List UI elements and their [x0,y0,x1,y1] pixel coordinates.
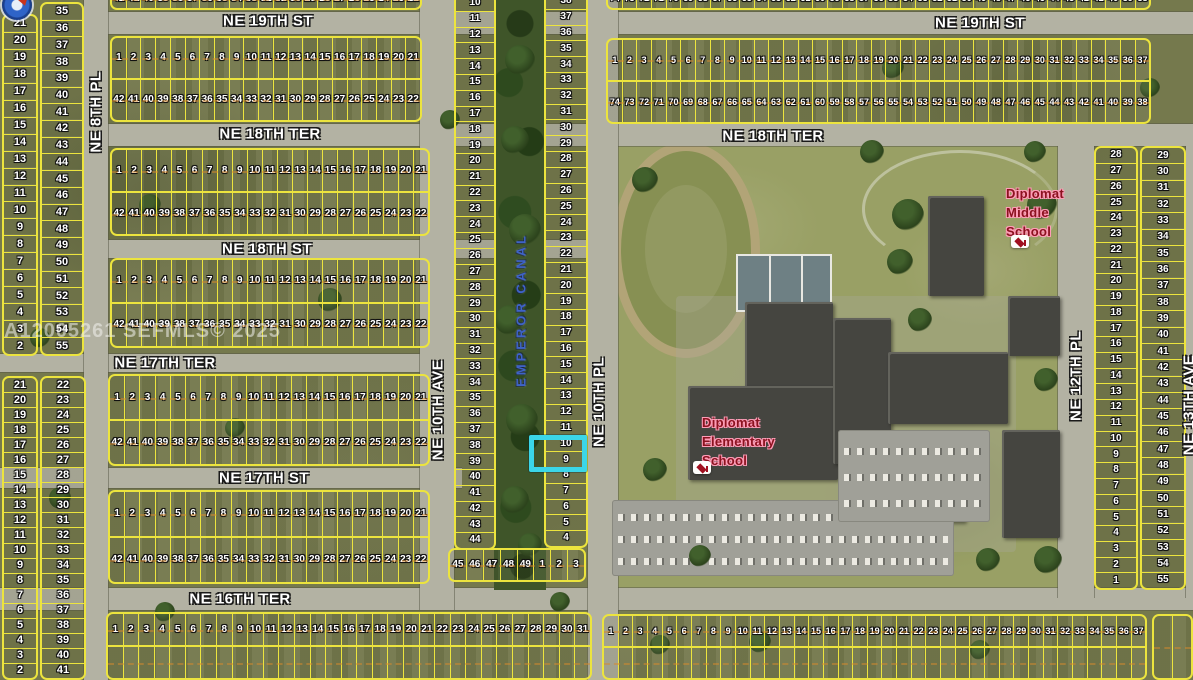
parcel-lot: 19 [546,294,586,310]
parcel-lot: 15 [323,492,338,536]
parcel-lot: 32 [42,528,84,543]
lot-number: 20 [888,56,898,65]
parcel-lot: 9 [4,559,36,574]
lot-number: 68 [698,98,708,107]
lot-number: 4 [160,509,166,519]
lot-number: 16 [1110,339,1121,349]
lot-number: 36 [1157,265,1168,275]
parcel-lot: 41 [1092,82,1107,122]
lot-number: 50 [962,0,972,3]
lot-number: 68 [698,0,708,3]
parcel-lot: 21 [414,260,428,302]
parcel-lot: 22 [435,614,451,645]
parcel-lot: 1 [112,260,127,302]
lot-number: 46 [56,190,68,201]
parcel-lot: 24 [945,40,960,80]
lot-number: 52 [1157,526,1168,536]
parcel-lot: 8 [4,236,36,253]
lot-number: 26 [349,0,360,4]
parcel-lot [795,648,810,678]
parcel-lot: 25 [368,538,383,582]
parcel-lot [912,648,927,678]
school-building [928,196,984,296]
parcel-lot: 16 [338,376,353,419]
lot-number: 12 [469,30,480,40]
lot-number: 22 [914,627,924,636]
lot-number: 26 [972,627,982,636]
lot-number: 5 [671,56,676,65]
lot-number: 38 [469,441,480,451]
parcel-lot: 24 [546,215,586,231]
lot-number: 64 [756,98,766,107]
parcel-lot: 26 [353,538,368,582]
parcel-lot: 25 [362,0,377,8]
parcel-lot: 52 [1142,524,1184,540]
lot-number: 33 [1075,627,1085,636]
parcel-lot: 12 [765,616,780,646]
lot-number: 22 [415,209,426,219]
lot-number: 45 [56,174,68,185]
parcel-row [604,646,1145,678]
parcel-lot: 4 [155,614,171,645]
parcel-lot: 15 [4,118,36,135]
parcel-lot: 7 [200,38,215,78]
lot-number: 10 [14,545,26,556]
lot-number: 43 [1157,379,1168,389]
parcel-lot: 5 [172,150,187,191]
lot-number: 15 [811,627,821,636]
parcel-lot: 39 [1142,311,1184,327]
lot-number: 40 [1108,0,1118,3]
lot-number: 30 [57,500,69,511]
lot-number: 1 [1113,576,1119,586]
parcel-lot [1000,648,1015,678]
aerial-parcel-map: EMPEROR CANAL Diplomat Elementary School… [0,0,1193,680]
lot-number: 16 [826,627,836,636]
street-label-ne-13th-ave: NE 13TH AVE [1181,355,1193,456]
lot-number: 23 [57,395,69,406]
lot-number: 9 [237,166,243,176]
parcel-lot: 32 [259,80,274,120]
parcel-lot: 32 [262,421,277,464]
parcel-lot: 29 [544,614,560,645]
parcel-lot: 18 [4,423,36,438]
parcel-lot: 25 [546,199,586,215]
parcel-lot: 14 [795,616,810,646]
lot-number: 31 [1050,56,1060,65]
parcel-lot: 44 [1048,82,1063,122]
lot-number: 24 [378,95,389,105]
lot-number: 30 [1035,56,1045,65]
lot-number: 31 [469,330,480,340]
lot-number: 28 [57,470,69,481]
lot-number: 13 [14,500,26,511]
lot-number: 28 [530,625,541,635]
school-label-elementary: Diplomat Elementary School [702,413,775,470]
lot-number: 28 [325,209,336,219]
parcel-row [1154,616,1191,678]
lot-number: 47 [1006,98,1016,107]
parcel-lot: 22 [414,421,428,464]
parcel-lot: 15 [809,616,824,646]
parcel-lot: 14 [308,260,323,302]
lot-number: 17 [14,440,26,451]
parcel-lot: 2 [1096,558,1136,574]
lot-number: 25 [484,625,495,635]
parcel-lot: 20 [456,154,494,170]
parcel-lot: 67 [711,82,726,122]
lot-number: 31 [280,209,291,219]
parcel-lot [1173,616,1191,678]
lot-number: 21 [421,625,432,635]
lot-number: 67 [712,98,722,107]
lot-number: 11 [265,276,276,286]
parcel-lot: 34 [456,375,494,391]
parcel-lot [497,647,513,678]
parcel-lot: 11 [456,12,494,28]
parcel-lot: 51 [42,272,82,289]
parcel-lot: 9 [725,40,740,80]
lot-number: 48 [56,224,68,235]
lot-number: 4 [17,635,23,646]
lot-number: 15 [324,509,335,519]
parcel-lot: 25 [456,233,494,249]
parcel-lot: 26 [456,249,494,265]
lot-number: 20 [400,509,411,519]
lot-number: 26 [355,555,366,565]
parcel-lot: 32 [1142,197,1184,213]
lot-number: 40 [144,209,155,219]
lot-number: 18 [375,625,386,635]
lot-number: 18 [370,393,381,403]
parcel-lot: 33 [42,544,84,559]
lot-number: 30 [294,555,305,565]
lot-number: 73 [624,0,634,3]
lot-number: 72 [639,98,649,107]
lot-number: 29 [1020,56,1030,65]
parcel-lot: 11 [755,40,770,80]
parcel-lot: 41 [456,486,494,502]
school-label-line: Middle [1006,203,1064,222]
lot-number: 36 [204,209,215,219]
parcel-row: 123456789101112131415161718192021 [110,376,428,419]
lot-number: 65 [742,0,752,3]
lot-number: 17 [560,328,571,338]
parcel-lot: 10 [736,616,751,646]
track-infield [645,185,727,313]
parcel-lot: 9 [4,219,36,236]
parcel-block-east-col-2: 2930313233343536373839404142434445464748… [1140,146,1186,590]
lot-number: 24 [385,555,396,565]
lot-number: 3 [146,276,152,286]
lot-number: 9 [237,625,243,635]
parcel-lot: 17 [4,84,36,101]
lot-number: 31 [275,0,286,4]
parcel-lot: 18 [368,376,383,419]
parcel-lot [264,647,280,678]
lot-number: 11 [266,625,277,635]
parcel-lot: 73 [623,0,638,8]
parcel-lot: 41 [42,664,84,678]
lot-number: 35 [57,575,69,586]
parcel-lot: 27 [42,453,84,468]
parcel-lot: 60 [813,0,828,8]
lot-number: 20 [400,276,411,286]
parcel-lot: 32 [456,344,494,360]
lot-number: 35 [56,6,68,17]
tree [860,140,884,164]
parcel-lot: 22 [546,247,586,263]
lot-number: 46 [1157,428,1168,438]
parcel-lot: 69 [681,0,696,8]
parcel-lot: 29 [42,483,84,498]
lot-number: 11 [757,56,767,65]
lot-number: 2 [623,627,628,636]
parcel-row: 1234567891011121314151617181920212223242… [108,614,590,645]
parcel-lot: 31 [575,614,590,645]
parcel-lot: 39 [156,421,171,464]
lot-number: 27 [339,555,350,565]
parcel-lot: 26 [353,421,368,464]
parcel-lot: 11 [264,614,280,645]
lot-number: 31 [279,555,290,565]
lot-number: 41 [1093,0,1103,3]
lot-number: 13 [294,393,305,403]
lot-number: 16 [339,509,350,519]
parcel-lot: 49 [974,82,989,122]
parcel-lot: 41 [127,80,142,120]
parcel-lot: 29 [1018,40,1033,80]
lot-number: 5 [563,518,569,528]
parcel-lot: 35 [215,80,230,120]
lot-number: 7 [206,625,212,635]
lot-number: 35 [1104,627,1114,636]
lot-number: 4 [1113,528,1119,538]
lot-number: 44 [56,157,68,168]
lot-number: 24 [943,627,953,636]
parcel-lot: 33 [247,421,262,464]
parcel-lot: 2 [623,40,638,80]
lot-number: 22 [408,95,419,105]
lot-number: 42 [1079,0,1089,3]
parcel-lot: 25 [369,193,384,234]
lot-number: 31 [577,625,588,635]
lot-number: 35 [216,95,227,105]
school-label-middle: Diplomat Middle School [1006,184,1064,241]
lot-number: 14 [469,62,480,72]
lot-number: 13 [295,166,306,176]
lot-number: 38 [174,209,185,219]
lot-number: 18 [364,53,375,63]
lot-number: 42 [112,438,123,448]
parcel-lot: 17 [353,376,368,419]
lot-number: 25 [370,438,381,448]
parcel-lot: 67 [711,0,726,8]
lot-number: 4 [652,627,657,636]
parcel-lot: 41 [125,538,140,582]
lot-number: 21 [903,56,913,65]
lot-number: 26 [1110,182,1121,192]
lot-number: 1 [116,276,122,286]
parcel-lot: 33 [247,538,262,582]
parcel-lot: 12 [4,169,36,186]
parcel-block-block-19th-partial-west: 4241403938373635343332313029282726252423… [110,0,422,10]
parcel-lot [326,647,342,678]
lot-number: 9 [1113,450,1119,460]
parcel-lot: 27 [333,0,348,8]
parcel-lot: 39 [156,80,171,120]
parcel-lot: 60 [813,82,828,122]
parcel-lot [575,647,590,678]
parcel-lot: 10 [247,492,262,536]
parcel-lot: 13 [293,150,308,191]
parcel-lot: 1 [108,614,124,645]
lot-number: 13 [1110,387,1121,397]
lot-number: 26 [469,251,480,261]
lot-number: 56 [874,0,884,3]
lot-number: 33 [560,75,571,85]
parcel-lot: 31 [274,80,289,120]
parcel-lot: 27 [333,80,348,120]
parcel-lot: 63 [769,82,784,122]
lot-number: 27 [334,0,345,4]
lot-number: 36 [202,95,213,105]
parcel-lot: 12 [546,405,586,421]
parcel-lot: 5 [546,515,586,531]
parcel-lot [435,647,451,678]
parcel-lot: 19 [872,40,887,80]
parcel-lot: 21 [897,616,912,646]
parcel-lot: 21 [414,376,428,419]
parcel-lot: 41 [1142,344,1184,360]
parcel-lot: 55 [886,0,901,8]
parcel-lot: 52 [930,82,945,122]
parcel-lot: 11 [259,38,274,78]
lot-number: 11 [1111,418,1122,428]
parcel-lot: 5 [170,614,186,645]
parcel-lot [186,647,202,678]
parcel-lot: 34 [546,57,586,73]
lot-number: 37 [560,12,571,22]
lot-number: 14 [14,137,26,148]
lot-number: 8 [17,239,23,250]
lot-number: 17 [469,109,480,119]
lot-number: 5 [667,627,672,636]
mls-watermark: A12005261 SEFMLS© 2025 [4,320,281,343]
parcel-lot: 25 [956,616,971,646]
lot-number: 7 [1113,481,1119,491]
parcel-lot: 23 [930,40,945,80]
lot-number: 40 [56,90,68,101]
parcel-lot [926,648,941,678]
lot-number: 63 [771,98,781,107]
lot-number: 13 [295,276,306,286]
parcel-lot [1132,648,1146,678]
parcel-lot: 36 [201,421,216,464]
parcel-lot: 5 [171,376,186,419]
lot-number: 43 [1064,98,1074,107]
lot-number: 31 [1157,183,1168,193]
lot-number: 36 [56,23,68,34]
lot-number: 1 [540,560,546,570]
lot-number: 9 [236,509,242,519]
lot-number: 23 [452,625,463,635]
parcel-lot: 16 [338,260,353,302]
lot-number: 41 [128,95,139,105]
lot-number: 9 [234,53,240,63]
lot-number: 20 [400,166,411,176]
parcel-lot: 29 [307,421,322,464]
parcel-lot: 50 [42,255,82,272]
parcel-lot: 9 [233,614,249,645]
lot-number: 51 [56,274,68,285]
lot-number: 12 [14,171,26,182]
lot-number: 29 [310,209,321,219]
lot-number: 30 [1031,627,1041,636]
lot-number: 34 [1157,232,1168,242]
parcel-lot: 45 [450,550,467,580]
lot-number: 22 [469,188,480,198]
parcel-lot: 34 [1088,616,1103,646]
parcel-lot: 43 [1142,377,1184,393]
parcel-lot: 63 [769,0,784,8]
lot-number: 17 [355,393,366,403]
parcel-lot: 1 [112,150,127,191]
parcel-lot: 21 [456,170,494,186]
lot-number: 3 [1113,544,1119,554]
lot-number: 23 [932,56,942,65]
lot-number: 21 [408,53,419,63]
lot-number: 11 [14,188,26,199]
parcel-lot: 36 [1142,262,1184,278]
parcel-lot [721,648,736,678]
parcel-lot: 23 [42,393,84,408]
parcel-lot [482,647,498,678]
parcel-lot: 26 [1096,180,1136,196]
parcel-lot: 7 [201,492,216,536]
lot-number: 36 [560,28,571,38]
parcel-lot: 16 [4,101,36,118]
lot-number: 5 [175,509,181,519]
lot-number: 13 [782,627,792,636]
parcel-lot: 22 [1096,243,1136,259]
parcel-lot: 14 [1096,369,1136,385]
lot-number: 19 [469,141,480,151]
parked-cars-row [844,474,984,481]
parcel-lot: 11 [4,186,36,203]
lot-number: 13 [469,46,480,56]
school-building [1008,296,1060,356]
parcel-lot: 6 [4,270,36,287]
parcel-lot: 17 [1096,321,1136,337]
parcel-lot: 45 [1033,82,1048,122]
parcel-lot: 14 [308,150,323,191]
parcel-lot: 38 [42,54,82,71]
parcel-lot: 35 [215,0,230,8]
parcel-lot: 10 [456,0,494,12]
parcel-lot: 30 [560,614,576,645]
parcel-lot [560,647,576,678]
lot-number: 33 [248,555,259,565]
lot-number: 14 [312,625,323,635]
parcel-lot: 6 [677,616,692,646]
lot-number: 18 [855,627,865,636]
parcel-lot: 41 [42,104,82,121]
lot-number: 28 [1006,56,1016,65]
lot-number: 3 [144,625,150,635]
lot-number: 16 [340,276,351,286]
lot-number: 34 [233,555,244,565]
